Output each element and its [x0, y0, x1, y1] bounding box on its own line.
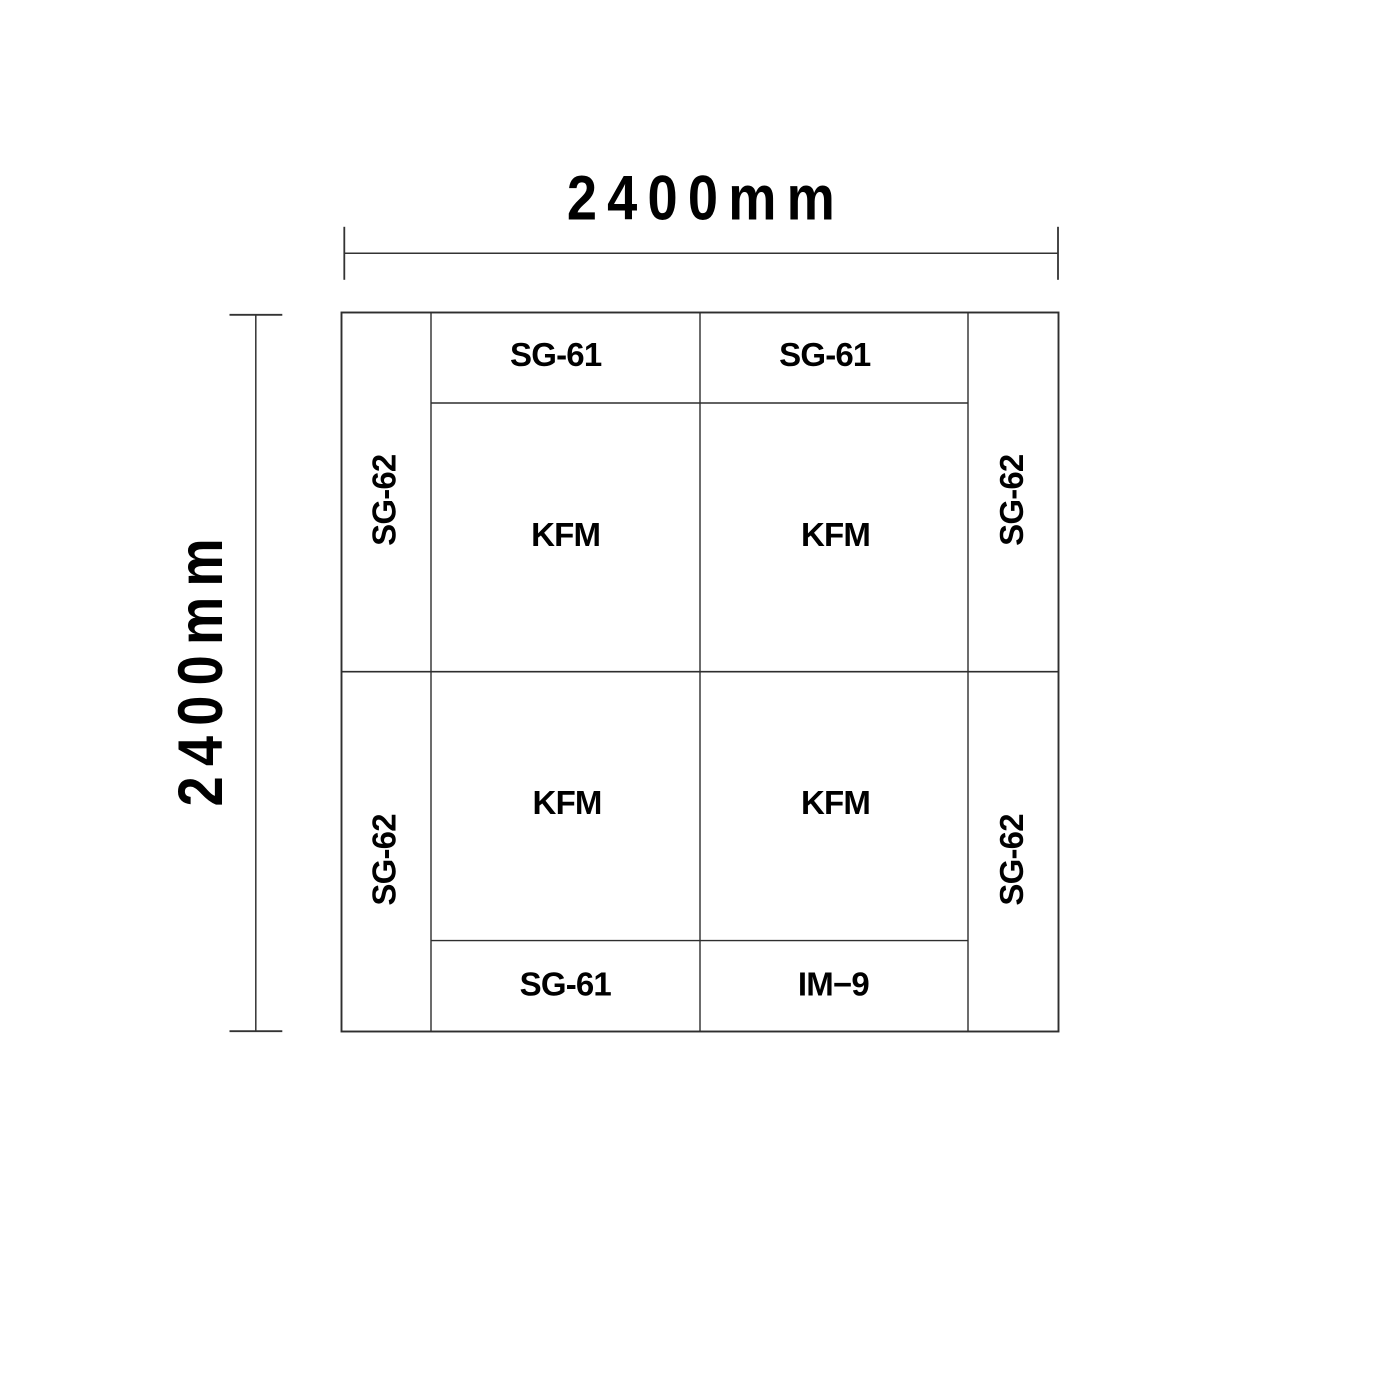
svg-text:KFM: KFM [801, 784, 870, 821]
svg-text:KFM: KFM [801, 516, 870, 553]
svg-text:KFM: KFM [531, 516, 600, 553]
svg-text:SG-61: SG-61 [520, 966, 612, 1003]
svg-text:SG-62: SG-62 [993, 814, 1030, 906]
svg-text:SG-62: SG-62 [366, 454, 403, 546]
svg-text:SG-62: SG-62 [366, 814, 403, 906]
svg-text:KFM: KFM [533, 784, 602, 821]
svg-text:2400mm: 2400mm [166, 528, 236, 806]
svg-text:2400mm: 2400mm [567, 164, 845, 234]
svg-text:IM−9: IM−9 [798, 966, 870, 1003]
svg-text:SG-61: SG-61 [779, 336, 871, 373]
svg-text:SG-62: SG-62 [993, 454, 1030, 546]
svg-text:SG-61: SG-61 [510, 336, 602, 373]
